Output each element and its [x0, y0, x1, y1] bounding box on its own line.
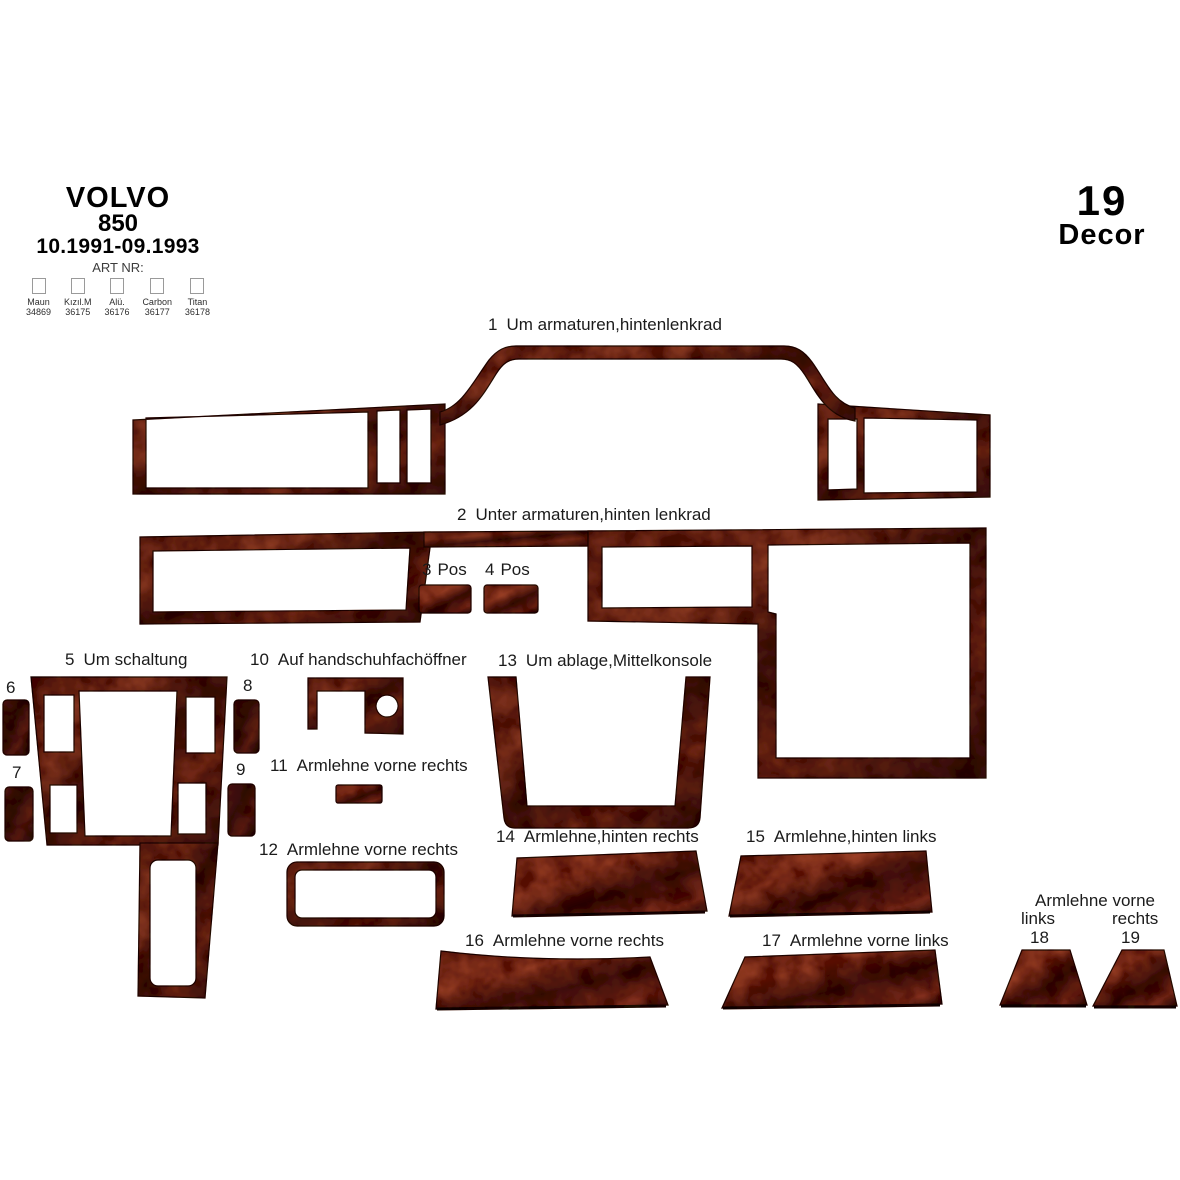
- part-text: Armlehne,hinten links: [774, 827, 937, 846]
- finish-code: 36176: [104, 308, 129, 318]
- finish-option: Alü. 36176: [104, 278, 129, 318]
- finish-checkbox: [71, 278, 85, 294]
- art-nr-label: ART NR:: [18, 260, 218, 275]
- finish-checkbox: [150, 278, 164, 294]
- part-18-side-label: links: [1021, 909, 1055, 929]
- part-text: Auf handschuhfachöffner: [278, 650, 467, 669]
- parts-diagram: [0, 0, 1180, 1180]
- part-text: Armlehne vorne rechts: [297, 756, 468, 775]
- part-19-side-label: rechts: [1112, 909, 1158, 929]
- model-name: 850: [18, 213, 218, 236]
- part-18-number: 18: [1030, 928, 1049, 948]
- part-number: 2: [457, 505, 466, 524]
- decor-count: 19: [1032, 180, 1172, 222]
- part-14-shape: [512, 851, 707, 916]
- finish-option: Carbon 36177: [142, 278, 172, 318]
- part-7-label: 7: [12, 763, 21, 783]
- part-4-shape: [484, 585, 538, 613]
- part-8-shape: [234, 700, 259, 753]
- part-number: 8: [243, 676, 252, 695]
- part-text: Armlehne,hinten rechts: [524, 827, 699, 846]
- finish-code: 36178: [185, 308, 210, 318]
- part-text: Pos: [500, 560, 529, 579]
- part-19-shape: [1093, 950, 1177, 1006]
- decor-label: Decor: [1032, 222, 1172, 248]
- part-17-label: 17Armlehne vorne links: [762, 931, 949, 951]
- part-9-label: 9: [236, 760, 245, 780]
- part-number: 16: [465, 931, 484, 950]
- part-number: 7: [12, 763, 21, 782]
- part-18-shape: [1000, 950, 1087, 1005]
- decor-badge: 19 Decor: [1032, 180, 1172, 248]
- part-3-label: 3Pos: [422, 560, 467, 580]
- part-19-number: 19: [1121, 928, 1140, 948]
- part-number: 6: [6, 678, 15, 697]
- part-8-label: 8: [243, 676, 252, 696]
- header-block: VOLVO 850 10.1991-09.1993 ART NR: Maun 3…: [18, 184, 218, 318]
- part-number: 5: [65, 650, 74, 669]
- part-1-label: 1Um armaturen,hintenlenkrad: [488, 315, 722, 335]
- part-number: 4: [485, 560, 494, 579]
- part-number: 9: [236, 760, 245, 779]
- part-10-label: 10Auf handschuhfachöffner: [250, 650, 467, 670]
- part-13-shape: [488, 677, 710, 828]
- part-4-label: 4Pos: [485, 560, 530, 580]
- group-18-19-heading: Armlehne vorne: [1020, 891, 1170, 911]
- finish-checkbox: [110, 278, 124, 294]
- model-years: 10.1991-09.1993: [18, 236, 218, 258]
- part-11-shape: [336, 785, 382, 803]
- part-9-shape: [228, 784, 255, 836]
- part-17-shape: [722, 950, 942, 1008]
- part-13-label: 13Um ablage,Mittelkonsole: [498, 651, 712, 671]
- part-text: Um armaturen,hintenlenkrad: [506, 315, 721, 334]
- brand-name: VOLVO: [18, 184, 218, 213]
- part-number: 11: [270, 756, 288, 775]
- part-14-label: 14Armlehne,hinten rechts: [496, 827, 699, 847]
- part-5-shape: [31, 677, 227, 998]
- part-7-shape: [5, 787, 33, 841]
- part-11-label: 11Armlehne vorne rechts: [270, 756, 468, 776]
- part-text: Um schaltung: [83, 650, 187, 669]
- part-text: Armlehne vorne links: [790, 931, 949, 950]
- part-number: 17: [762, 931, 781, 950]
- part-12-label: 12Armlehne vorne rechts: [259, 840, 458, 860]
- part-6-label: 6: [6, 678, 15, 698]
- part-number: 10: [250, 650, 269, 669]
- part-6-shape: [3, 700, 29, 755]
- part-number: 13: [498, 651, 517, 670]
- part-12-shape: [287, 862, 444, 926]
- part-text: Unter armaturen,hinten lenkrad: [475, 505, 710, 524]
- part-5-label: 5Um schaltung: [65, 650, 187, 670]
- finish-code: 36175: [65, 308, 90, 318]
- part-number: 14: [496, 827, 515, 846]
- part-16-label: 16Armlehne vorne rechts: [465, 931, 664, 951]
- part-text: Um ablage,Mittelkonsole: [526, 651, 712, 670]
- part-text: Pos: [437, 560, 466, 579]
- part-2-label: 2Unter armaturen,hinten lenkrad: [457, 505, 711, 525]
- part-number: 3: [422, 560, 431, 579]
- finish-code: 36177: [145, 308, 170, 318]
- finish-options: Maun 34869 Kızıl.M 36175 Alü. 36176 Carb…: [18, 278, 218, 318]
- finish-option: Maun 34869: [26, 278, 51, 318]
- part-3-shape: [419, 585, 471, 613]
- part-number: 12: [259, 840, 278, 859]
- part-16-shape: [436, 951, 668, 1009]
- part-number: 15: [746, 827, 765, 846]
- part-number: 1: [488, 315, 497, 334]
- finish-option: Kızıl.M 36175: [64, 278, 92, 318]
- finish-checkbox: [32, 278, 46, 294]
- part-15-shape: [729, 851, 932, 916]
- part-text: Armlehne vorne rechts: [287, 840, 458, 859]
- finish-code: 34869: [26, 308, 51, 318]
- finish-checkbox: [190, 278, 204, 294]
- product-sheet: VOLVO 850 10.1991-09.1993 ART NR: Maun 3…: [0, 0, 1180, 1180]
- part-10-shape: [308, 678, 403, 734]
- finish-option: Titan 36178: [185, 278, 210, 318]
- part-text: Armlehne vorne rechts: [493, 931, 664, 950]
- part-1-shape: [133, 346, 990, 500]
- part-15-label: 15Armlehne,hinten links: [746, 827, 936, 847]
